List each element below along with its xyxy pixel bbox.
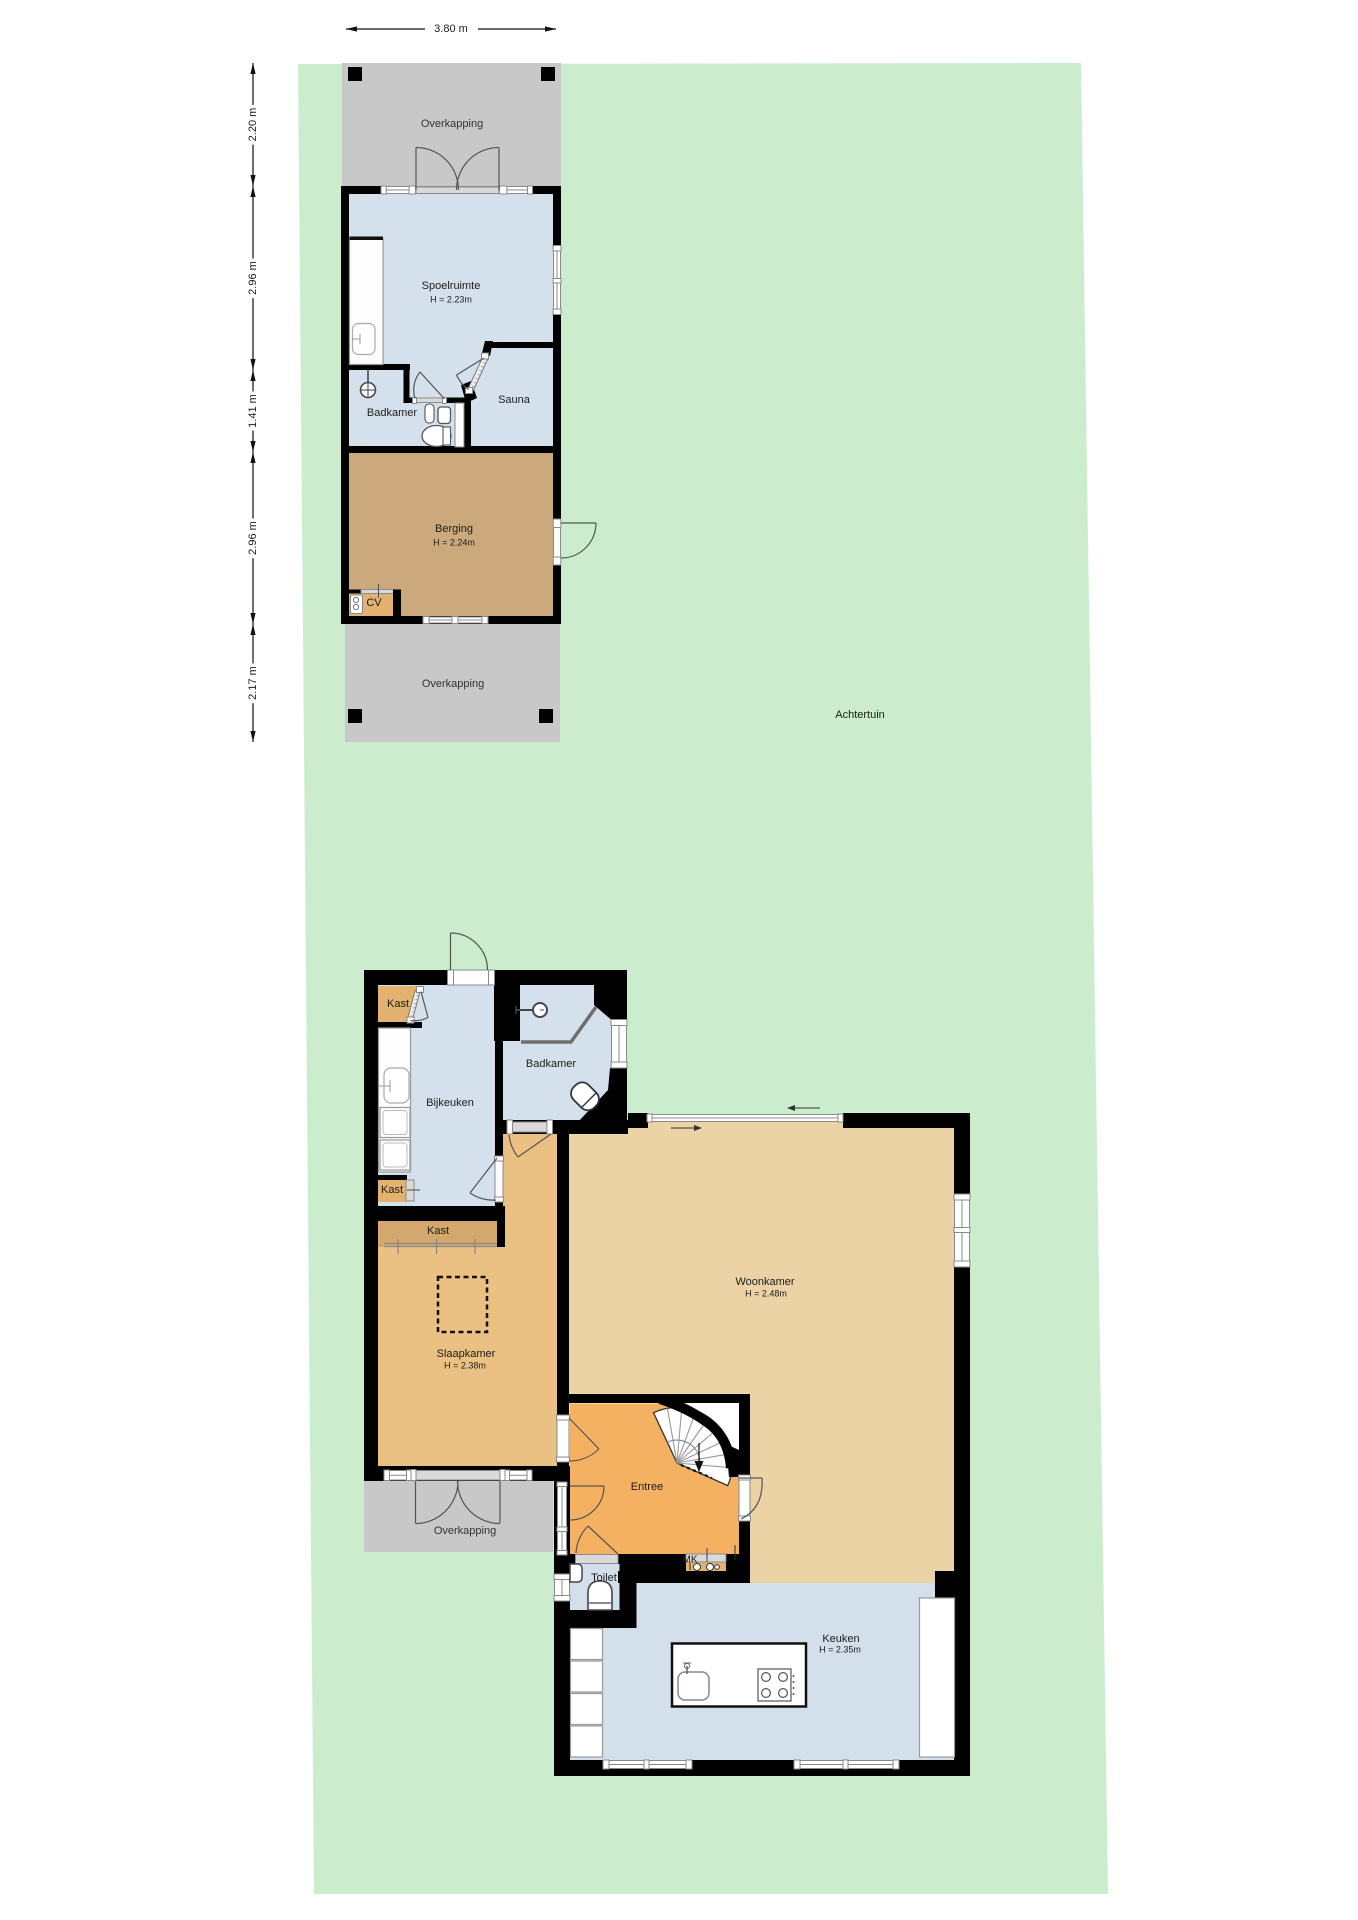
svg-text:2.96 m: 2.96 m [247, 521, 259, 555]
svg-text:Overkapping: Overkapping [422, 678, 484, 690]
svg-text:H = 2.38m: H = 2.38m [444, 1360, 486, 1370]
svg-text:Woonkamer: Woonkamer [735, 1276, 794, 1288]
svg-text:Kast: Kast [387, 998, 409, 1010]
svg-text:Kast: Kast [427, 1225, 449, 1237]
svg-text:Badkamer: Badkamer [367, 407, 417, 419]
svg-text:H = 2.48m: H = 2.48m [745, 1288, 787, 1298]
svg-text:Overkapping: Overkapping [434, 1525, 496, 1537]
svg-text:3.80 m: 3.80 m [434, 23, 468, 35]
svg-text:Bijkeuken: Bijkeuken [426, 1097, 474, 1109]
svg-text:H = 2.24m: H = 2.24m [433, 537, 475, 547]
svg-text:Keuken: Keuken [822, 1633, 859, 1645]
svg-text:Achtertuin: Achtertuin [835, 709, 885, 721]
svg-text:Berging: Berging [435, 523, 473, 535]
svg-text:2.17 m: 2.17 m [247, 666, 259, 700]
svg-text:2.20 m: 2.20 m [247, 108, 259, 142]
svg-text:1.41 m: 1.41 m [247, 394, 259, 428]
svg-text:Sauna: Sauna [498, 394, 531, 406]
svg-text:H = 2.35m: H = 2.35m [819, 1644, 861, 1654]
svg-text:CV: CV [366, 597, 382, 609]
svg-text:Spoelruimte: Spoelruimte [422, 280, 481, 292]
svg-text:Entree: Entree [631, 1481, 663, 1493]
svg-text:H = 2.23m: H = 2.23m [430, 294, 472, 304]
svg-text:MK: MK [683, 1555, 698, 1566]
svg-text:Toilet: Toilet [591, 1572, 617, 1584]
svg-text:Overkapping: Overkapping [421, 118, 483, 130]
svg-text:Kast: Kast [381, 1184, 403, 1196]
svg-text:2.96 m: 2.96 m [247, 261, 259, 295]
svg-text:Badkamer: Badkamer [526, 1058, 576, 1070]
svg-text:Slaapkamer: Slaapkamer [437, 1348, 496, 1360]
